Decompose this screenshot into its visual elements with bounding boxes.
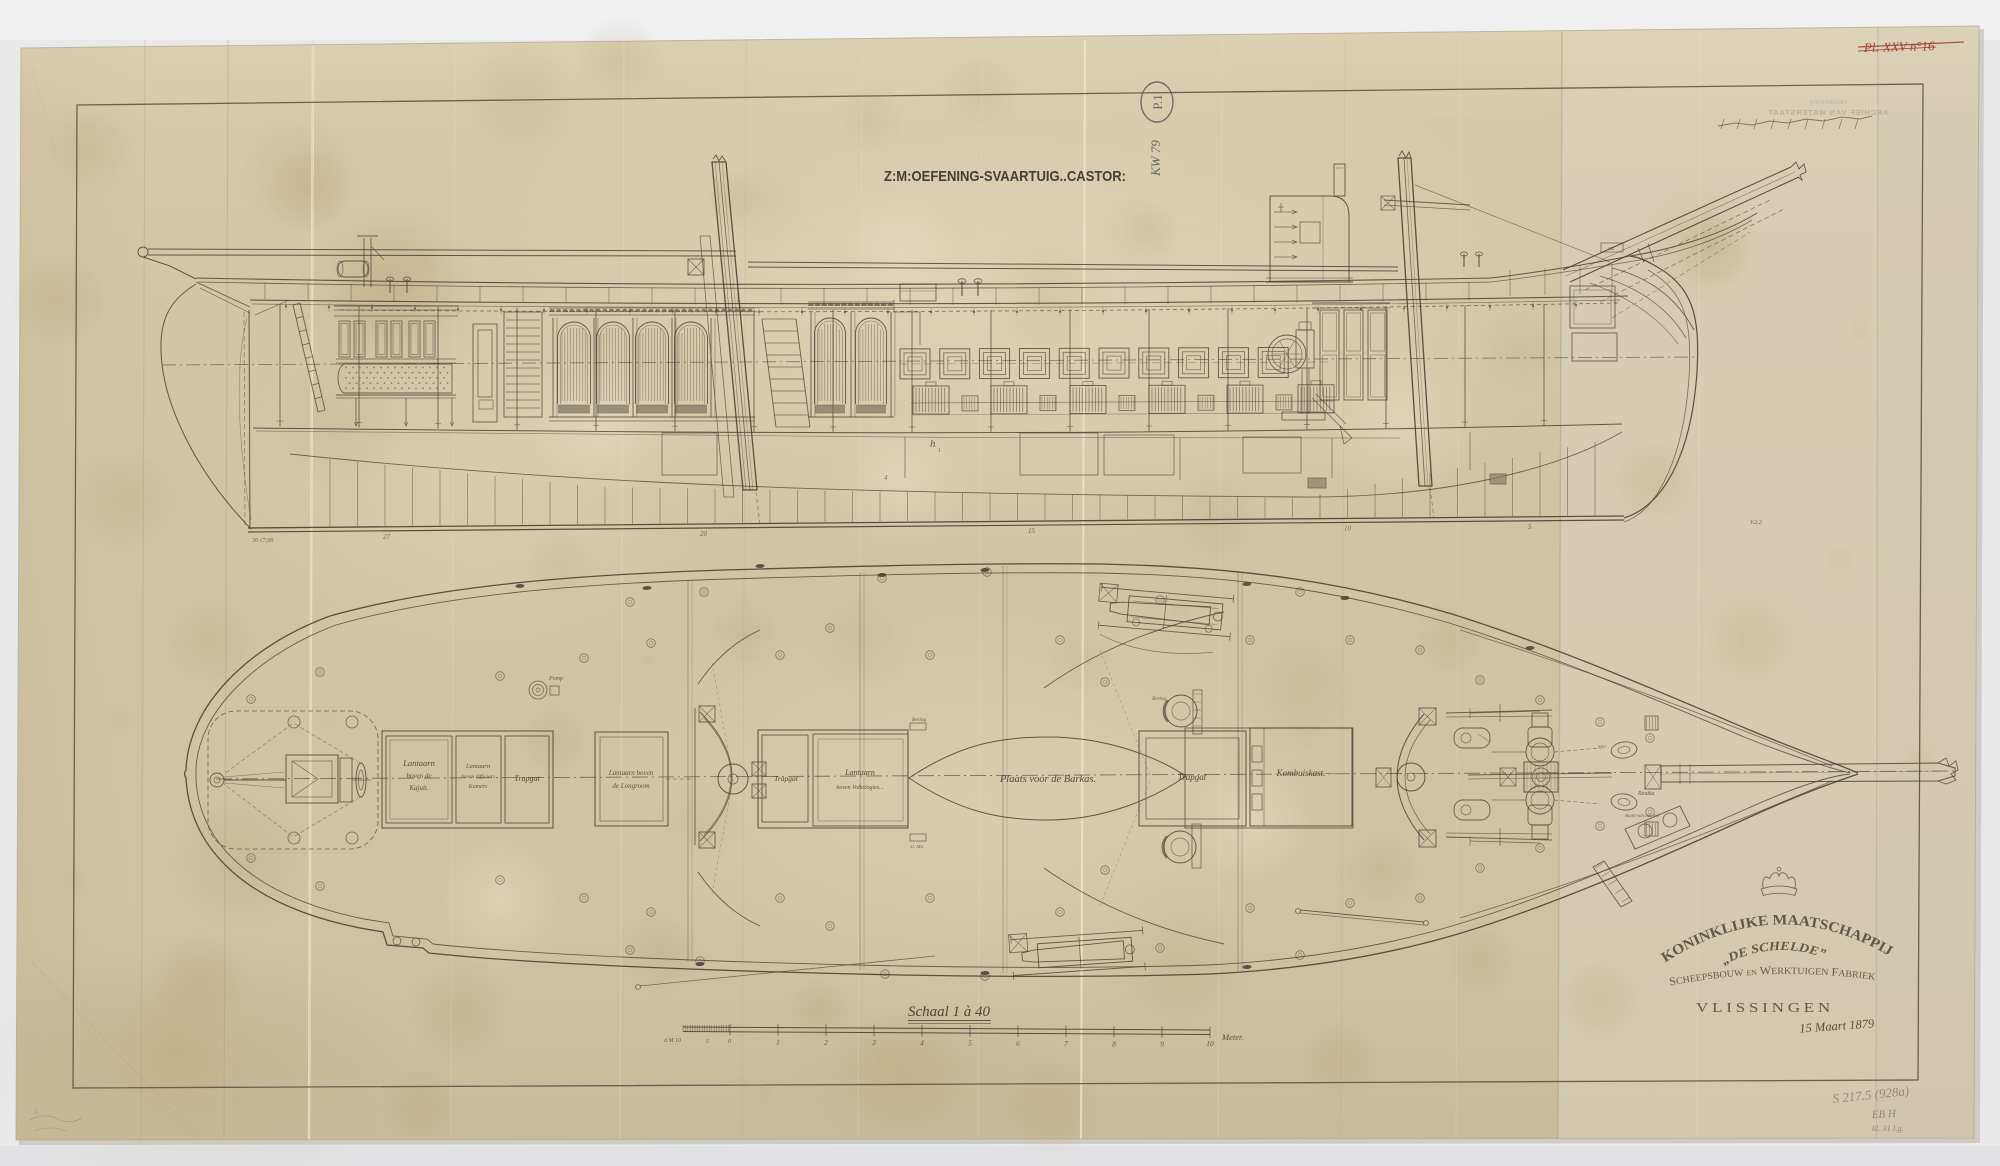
svg-text:Plaats voor de Barkas.: Plaats voor de Barkas. bbox=[999, 774, 1096, 785]
svg-text:Beting: Beting bbox=[1152, 696, 1167, 702]
svg-text:Lantaarn: Lantaarn bbox=[402, 758, 435, 768]
svg-text:7: 7 bbox=[1064, 1039, 1068, 1048]
svg-text:ARCHIEF VAN WATERSTAAT: ARCHIEF VAN WATERSTAAT bbox=[1768, 108, 1889, 117]
svg-text:Z:M:OEFENING-SVAARTUIG..CASTOR: Z:M:OEFENING-SVAARTUIG..CASTOR: bbox=[884, 168, 1126, 185]
svg-text:Ruim van het wel: Ruim van het wel bbox=[1624, 814, 1660, 819]
svg-text:Meter.: Meter. bbox=[1221, 1032, 1243, 1042]
svg-text:Schaal 1 à 40: Schaal 1 à 40 bbox=[908, 1004, 991, 1020]
svg-text:V.2.2: V.2.2 bbox=[1750, 520, 1762, 526]
svg-text:5: 5 bbox=[34, 1107, 38, 1116]
svg-text:Lantaarn: Lantaarn bbox=[844, 768, 875, 777]
svg-text:Trapgat: Trapgat bbox=[774, 774, 799, 783]
svg-text:Kamers: Kamers bbox=[468, 784, 488, 790]
svg-text:verzameling: verzameling bbox=[1809, 100, 1847, 106]
svg-text:boven de: boven de bbox=[406, 772, 431, 780]
svg-text:6: 6 bbox=[1016, 1039, 1020, 1048]
svg-text:782: 782 bbox=[1607, 247, 1615, 252]
svg-text:de Longroom: de Longroom bbox=[612, 782, 649, 790]
svg-text:15: 15 bbox=[1028, 527, 1036, 535]
svg-text:boven Officiers: boven Officiers bbox=[461, 773, 495, 780]
svg-text:Reutka: Reutka bbox=[1637, 791, 1655, 797]
svg-text:d.M 10: d.M 10 bbox=[664, 1038, 681, 1044]
svg-text:0: 0 bbox=[728, 1039, 731, 1045]
svg-text:KW 79: KW 79 bbox=[1148, 140, 1163, 177]
svg-text:5: 5 bbox=[968, 1039, 972, 1048]
svg-text:30 √7,66: 30 √7,66 bbox=[251, 537, 273, 544]
svg-text:2: 2 bbox=[824, 1038, 828, 1047]
svg-text:4: 4 bbox=[920, 1038, 924, 1047]
svg-text:9: 9 bbox=[1160, 1040, 1164, 1049]
svg-text:Trapgat: Trapgat bbox=[1178, 772, 1207, 782]
svg-text:20: 20 bbox=[700, 530, 708, 538]
svg-text:8: 8 bbox=[1112, 1040, 1116, 1049]
svg-text:10: 10 bbox=[1344, 525, 1352, 533]
svg-text:boven Volkslogies...: boven Volkslogies... bbox=[836, 785, 883, 791]
svg-text:P.1: P.1 bbox=[1150, 94, 1165, 110]
svg-text:1: 1 bbox=[938, 448, 941, 454]
svg-text:Lantaarn: Lantaarn bbox=[465, 763, 490, 770]
svg-text:Kajuit.: Kajuit. bbox=[408, 784, 429, 792]
svg-text:Kombuiskast.—: Kombuiskast.— bbox=[1276, 768, 1335, 778]
svg-text:1: 1 bbox=[776, 1038, 780, 1047]
svg-text:St. Ma: St. Ma bbox=[910, 845, 924, 850]
svg-text:EB H: EB H bbox=[1870, 1108, 1897, 1121]
svg-text:VLISSINGEN: VLISSINGEN bbox=[1696, 1000, 1834, 1015]
svg-text:5: 5 bbox=[1528, 523, 1532, 531]
svg-text:h: h bbox=[930, 438, 936, 450]
svg-text:Spil: Spil bbox=[1598, 745, 1606, 750]
svg-text:Beting: Beting bbox=[912, 717, 927, 723]
svg-text:Trapgat: Trapgat bbox=[514, 774, 540, 783]
svg-text:Pomp: Pomp bbox=[548, 676, 563, 682]
svg-text:10: 10 bbox=[1206, 1039, 1214, 1048]
svg-text:Lantaarn boven: Lantaarn boven bbox=[608, 769, 654, 777]
svg-text:5: 5 bbox=[706, 1039, 709, 1045]
svg-text:27: 27 bbox=[383, 533, 391, 541]
svg-text:kl. 31 l.g.: kl. 31 l.g. bbox=[1872, 1123, 1904, 1133]
svg-text:3: 3 bbox=[871, 1038, 876, 1047]
svg-text:4: 4 bbox=[884, 474, 888, 482]
